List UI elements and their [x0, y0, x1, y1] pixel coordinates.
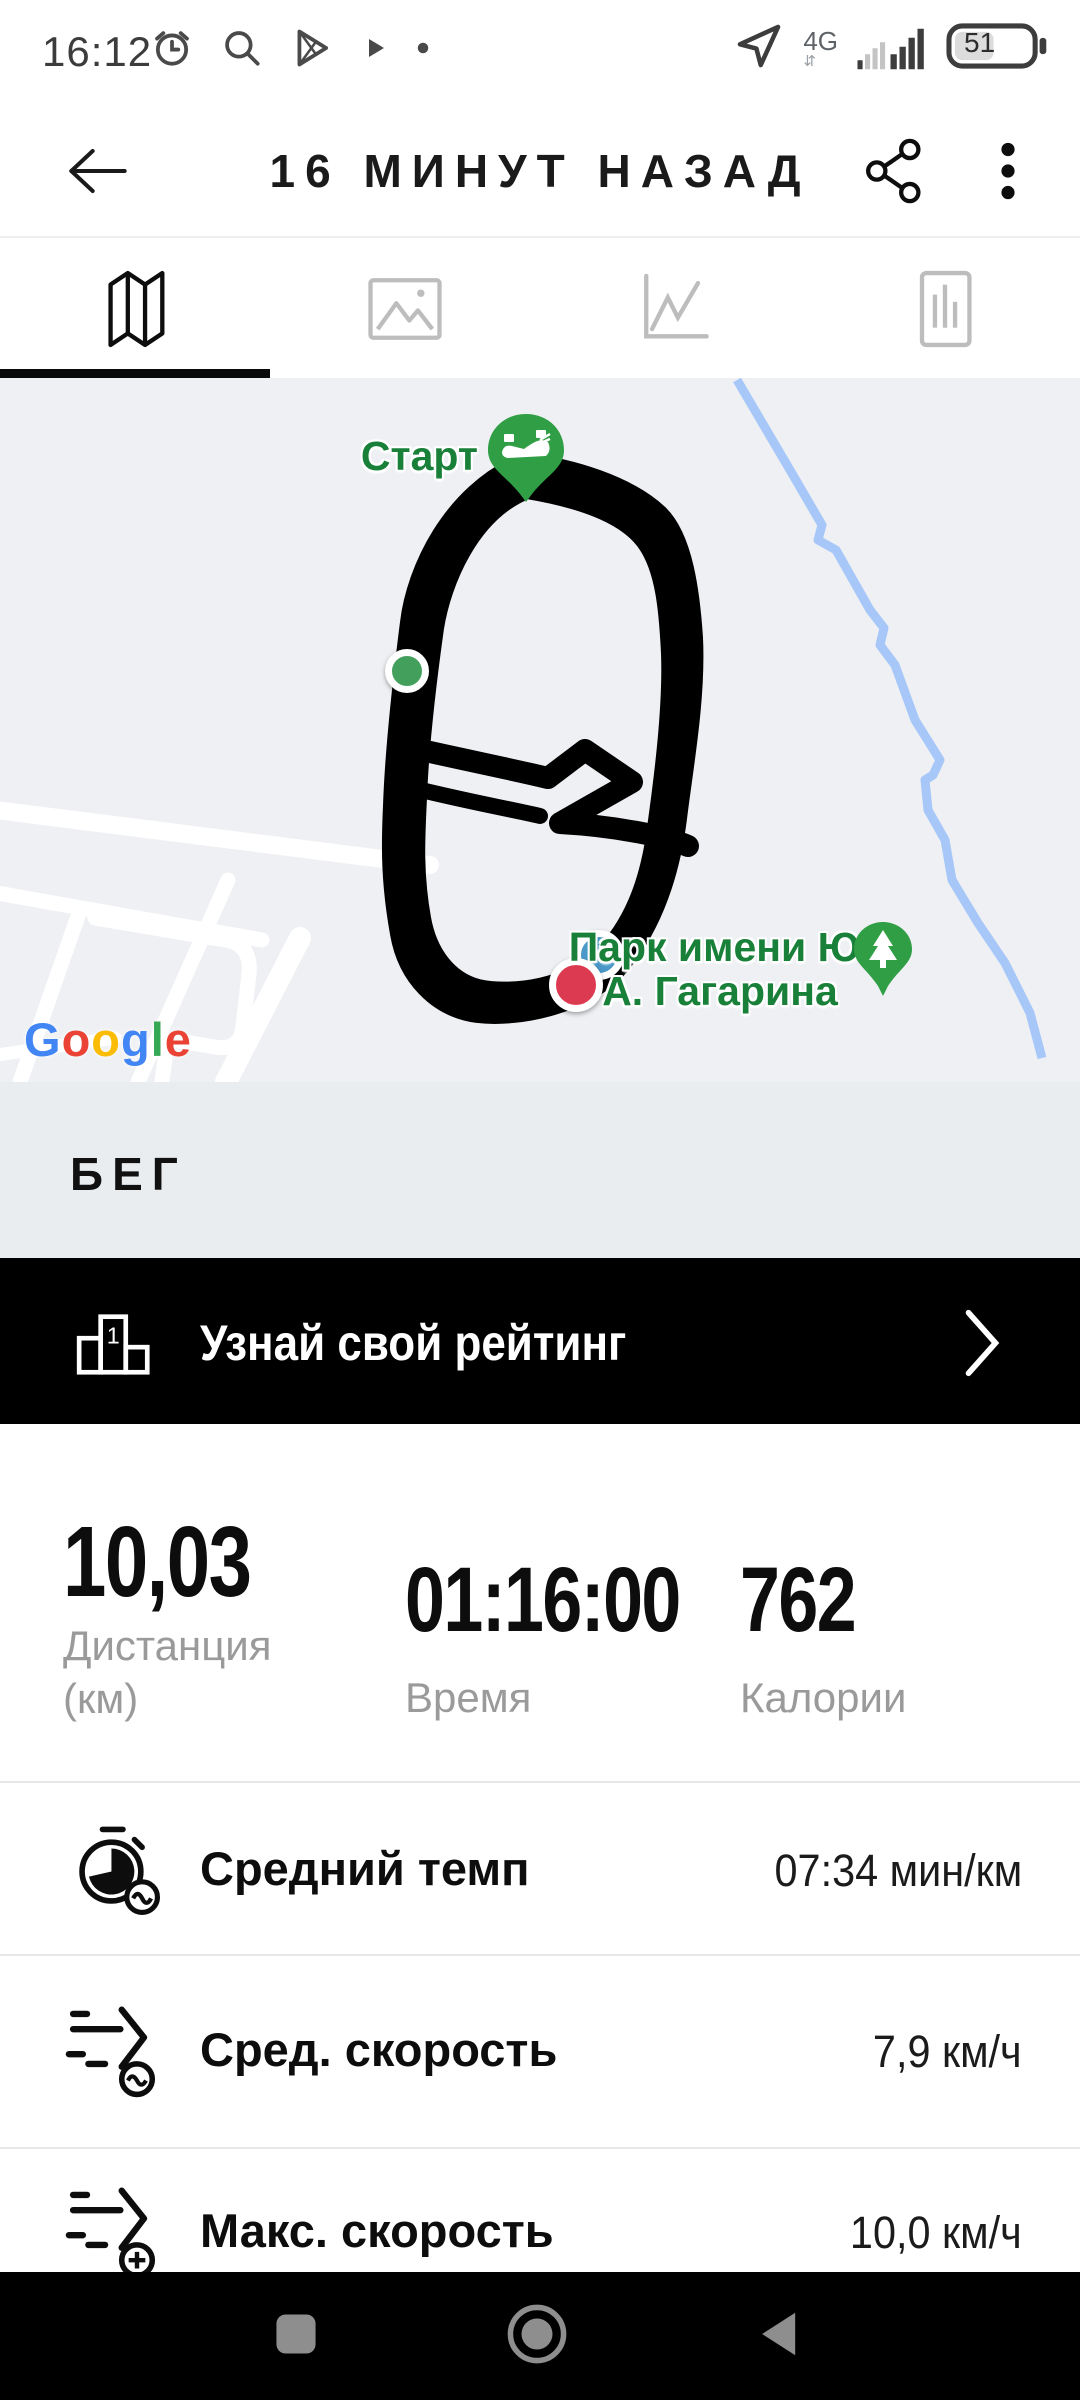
- avg-pace-icon: [68, 1823, 160, 1915]
- distance-value: 10,03: [63, 1505, 303, 1620]
- tab-chart[interactable]: [540, 240, 810, 378]
- activity-detail-screen: 16:12: [0, 0, 1080, 2400]
- recents-square-icon: [273, 2311, 319, 2357]
- start-label: Старт: [300, 433, 478, 480]
- tab-map[interactable]: [0, 240, 270, 378]
- rating-banner-label: Узнай свой рейтинг: [200, 1314, 685, 1372]
- play-store-icon: [290, 26, 334, 75]
- avg-pace-label: Средний темп: [200, 1841, 530, 1896]
- park-pin[interactable]: [850, 920, 916, 1011]
- recents-button[interactable]: [273, 2311, 319, 2362]
- max-speed-label: Макс. скорость: [200, 2203, 554, 2258]
- duration-value: 01:16:00: [405, 1548, 757, 1653]
- signal-bars: [856, 21, 928, 76]
- calories-value: 762: [740, 1548, 888, 1653]
- back-nav-button[interactable]: [755, 2308, 807, 2365]
- active-tab-indicator: [0, 369, 270, 378]
- podium-icon: 1: [72, 1300, 158, 1385]
- alarm-icon: [150, 26, 194, 75]
- detail-row-avg-speed[interactable]: Сред. скорость 7,9 км/ч: [0, 1956, 1080, 2147]
- rating-banner[interactable]: 1 Узнай свой рейтинг: [0, 1258, 1080, 1424]
- svg-text:1: 1: [107, 1323, 120, 1349]
- home-circle-icon: [506, 2303, 568, 2365]
- play-small-icon: [360, 33, 390, 68]
- start-pin[interactable]: [480, 410, 572, 511]
- data-arrows-icon: ⇵: [803, 54, 838, 69]
- home-button[interactable]: [506, 2303, 568, 2370]
- park-pin-tree: [850, 920, 916, 1006]
- detail-row-avg-pace[interactable]: Средний темп 07:34 мин/км: [0, 1783, 1080, 1954]
- search-icon: [220, 26, 264, 75]
- tab-photos[interactable]: [270, 240, 540, 378]
- detail-row-max-speed[interactable]: Макс. скорость 10,0 км/ч: [0, 2149, 1080, 2272]
- avg-speed-icon: [62, 2000, 162, 2100]
- overflow-menu-icon: [988, 138, 1028, 204]
- share-icon: [868, 141, 918, 201]
- position-green-dot: [385, 649, 429, 693]
- battery-icon: 51: [946, 20, 1050, 77]
- activity-type-label: БЕГ: [70, 1147, 187, 1201]
- park-label-line1: Парк имени Ю.: [540, 924, 900, 971]
- line-chart-tab-icon: [629, 263, 721, 355]
- overflow-menu-button[interactable]: [988, 138, 1028, 204]
- photos-tab-icon: [359, 263, 451, 355]
- status-bar-left-icons: [150, 24, 430, 76]
- max-speed-value: 10,0 км/ч: [835, 2207, 1022, 2259]
- calories-label: Калории: [740, 1672, 906, 1725]
- notification-dot: [416, 41, 430, 60]
- duration-label: Время: [405, 1672, 531, 1725]
- park-label-line2: А. Гагарина: [540, 968, 900, 1015]
- network-type-label: 4G⇵: [803, 28, 838, 69]
- status-bar-right-icons: 4G⇵: [733, 18, 1050, 78]
- back-triangle-icon: [755, 2308, 807, 2360]
- max-speed-icon: [62, 2181, 162, 2272]
- avg-speed-label: Сред. скорость: [200, 2022, 557, 2077]
- clock-text: 16:12: [42, 28, 152, 76]
- battery-percent-text: 51: [964, 27, 995, 59]
- chevron-right-icon: [960, 1306, 1004, 1385]
- start-pin-shoe: [480, 410, 572, 506]
- location-arrow-icon: [733, 20, 785, 77]
- bar-chart-tab-icon: [899, 263, 991, 355]
- distance-label: Дистанция(км): [63, 1620, 271, 1725]
- tab-splits[interactable]: [810, 240, 1080, 378]
- activity-header: 16 МИНУТ НАЗАД: [0, 100, 1080, 238]
- android-nav-bar: [0, 2272, 1080, 2400]
- avg-speed-value: 7,9 км/ч: [860, 2026, 1022, 2078]
- avg-pace-value: 07:34 мин/км: [753, 1845, 1022, 1897]
- tab-bar: [0, 240, 1080, 378]
- share-button[interactable]: [862, 138, 926, 204]
- route-map[interactable]: Старт Парк имени Ю. А. Гагарина: [0, 378, 1080, 1082]
- status-bar: 16:12: [0, 0, 1080, 100]
- map-tab-icon: [89, 263, 181, 355]
- google-logo: Google: [24, 1012, 192, 1067]
